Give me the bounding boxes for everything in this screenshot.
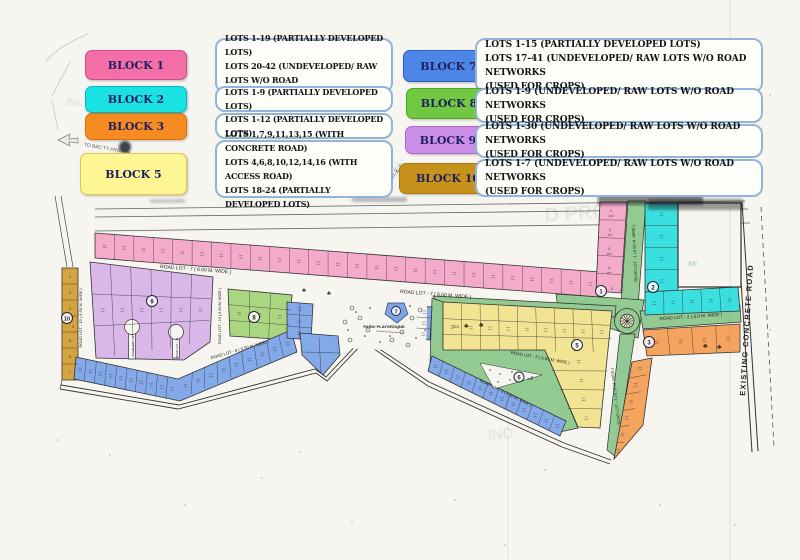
svg-text:5: 5 (611, 287, 613, 291)
legend-chip-label: BLOCK 5 (105, 168, 161, 181)
svg-text:♣: ♣ (302, 288, 306, 294)
svg-text:157: 157 (606, 252, 611, 256)
block-marker-5: 5 (572, 340, 583, 351)
svg-text:♣: ♣ (717, 344, 722, 351)
legend-desc-block-5: LOTS 1,7,9,11,13,15 (WITH CONCRETE ROAD)… (215, 140, 393, 198)
block-marker-2: 2 (648, 282, 659, 293)
svg-text:137: 137 (608, 214, 613, 218)
legend-desc-block-9: LOTS 1-30 (UNDEVELOPED/ RAW LOTS W/O ROA… (475, 124, 763, 158)
svg-text:7: 7 (394, 309, 397, 315)
legend-chip-label: BLOCK 1 (108, 59, 164, 72)
mc-handwriting: Mc (688, 261, 698, 268)
svg-text:2: 2 (69, 291, 71, 295)
svg-text:5: 5 (69, 339, 71, 343)
block-marker-6: 6 (514, 372, 524, 382)
legend-chip-label: BLOCK 8 (421, 97, 477, 110)
svg-text:10: 10 (64, 316, 70, 322)
legend-desc-block-10: LOTS 1-7 (UNDEVELOPED/ RAW LOTS W/O ROAD… (475, 159, 763, 197)
lot-108-label: 108 (527, 377, 533, 381)
legend-chip-label: BLOCK 10 (416, 172, 480, 185)
block-marker-10: 10 (62, 313, 73, 324)
svg-text:IND: IND (487, 425, 514, 444)
svg-text:3: 3 (69, 307, 71, 311)
svg-text:1: 1 (69, 275, 71, 279)
road-lot-13-label: ROAD LOT - 13 ( 6.50 M. WIDE ) (78, 288, 83, 348)
svg-text:157: 157 (606, 271, 611, 275)
block-marker-7: 7 (392, 307, 401, 316)
svg-text:♣: ♣ (703, 343, 708, 350)
svg-text:7: 7 (69, 371, 71, 375)
block-marker-8: 8 (249, 312, 260, 323)
legend-chip-block-5: BLOCK 5 (80, 153, 187, 195)
road-lot-12-label: ROAD LOT - 12 (131, 335, 135, 357)
block-marker-3: 3 (644, 337, 655, 348)
svg-text:♣: ♣ (464, 323, 469, 330)
svg-text:4: 4 (608, 266, 610, 270)
svg-text:♣: ♣ (327, 291, 331, 297)
legend: BLOCK 1 LOTS 1-19 (PARTIALLY DEVELOPED L… (0, 0, 800, 210)
roundabout (615, 309, 640, 334)
lot-124-label: 124 (452, 324, 459, 329)
road-lot-10-label: ROAD LOT - 10 ( 6.50 M. WIDE ) (218, 287, 222, 344)
subdivision-plan-page: D PROP PROPERTY IND INL (0, 0, 800, 560)
road-lot-11-label: ROAD LOT - 11 (175, 337, 179, 358)
legend-chip-label: BLOCK 3 (108, 120, 164, 133)
legend-chip-label: BLOCK 2 (108, 93, 164, 106)
block2-area-row (645, 287, 740, 315)
block-marker-1: 1 (596, 286, 607, 297)
svg-text:157: 157 (607, 233, 612, 237)
legend-chip-block-1: BLOCK 1 (85, 50, 187, 80)
park-label: PARK/ PLAYGROUND (363, 324, 404, 329)
legend-chip-label: BLOCK 9 (420, 134, 476, 147)
svg-text:6: 6 (69, 355, 71, 359)
svg-text:4: 4 (72, 325, 74, 329)
legend-chip-label: BLOCK 7 (420, 60, 476, 73)
svg-text:3: 3 (608, 247, 610, 251)
legend-desc-block-8: LOTS 1-9 (UNDEVELOPED/ RAW LOTS W/O ROAD… (475, 88, 763, 123)
legend-desc-block-2: LOTS 1-9 (PARTIALLY DEVELOPED LOTS) (215, 86, 393, 112)
svg-text:♣: ♣ (479, 322, 484, 329)
legend-chip-block-3: BLOCK 3 (85, 113, 187, 140)
excluded-parcel (678, 203, 741, 287)
block-marker-9: 9 (147, 296, 158, 307)
svg-text:2: 2 (609, 228, 611, 232)
legend-chip-block-2: BLOCK 2 (85, 86, 187, 113)
